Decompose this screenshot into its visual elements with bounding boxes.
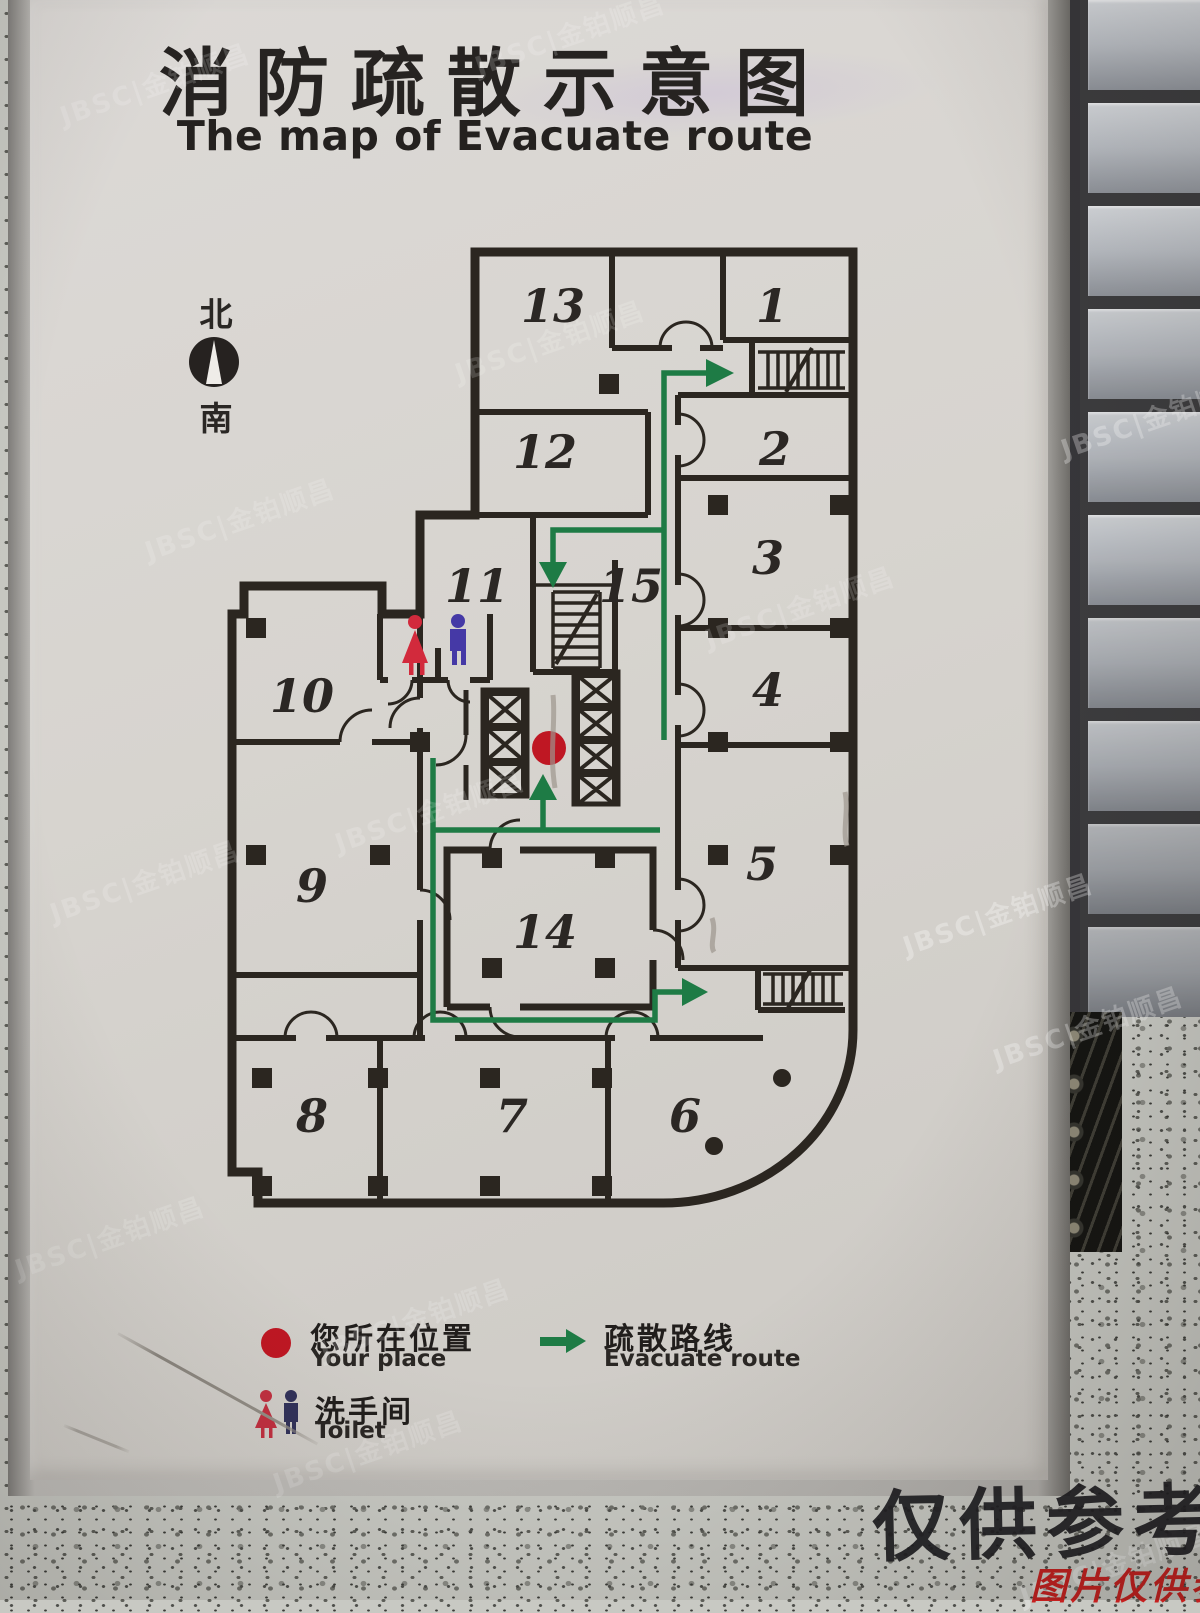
legend-route-arrow <box>540 1329 586 1353</box>
photo-of-evacuation-sign: { "photo": { "sign": { "title_zh": "消防疏散… <box>0 0 1200 1600</box>
your-place-dot <box>532 731 566 765</box>
room-label-3: 3 <box>752 531 784 585</box>
legend-your-place-dot <box>261 1328 291 1358</box>
stairs-icon-bottom-right <box>763 970 843 1008</box>
room-label-8: 8 <box>295 1089 328 1143</box>
floor-plan: 13 1 12 2 3 11 15 4 10 9 5 14 8 7 6 <box>0 0 1200 1600</box>
image-reference-only-stamp: 图片仅供参考 <box>1030 1556 1200 1610</box>
room-label-15: 15 <box>599 559 663 613</box>
man-icon <box>450 614 466 665</box>
room-label-2: 2 <box>758 422 791 476</box>
room-label-9: 9 <box>296 859 328 913</box>
room-label-11: 11 <box>445 559 509 613</box>
room-label-1: 1 <box>756 279 788 333</box>
room-label-7: 7 <box>496 1089 528 1143</box>
room-label-6: 6 <box>669 1089 701 1143</box>
woman-icon <box>402 615 428 675</box>
interior-walls <box>232 252 853 1203</box>
stairs-icon-top-right <box>758 348 845 392</box>
room-label-10: 10 <box>270 669 334 723</box>
room-label-4: 4 <box>752 663 784 717</box>
room-label-14: 14 <box>513 905 577 959</box>
smudge-marks <box>552 695 847 952</box>
room-label-12: 12 <box>513 425 577 479</box>
compass-icon <box>189 337 239 387</box>
room-label-5: 5 <box>746 837 778 891</box>
